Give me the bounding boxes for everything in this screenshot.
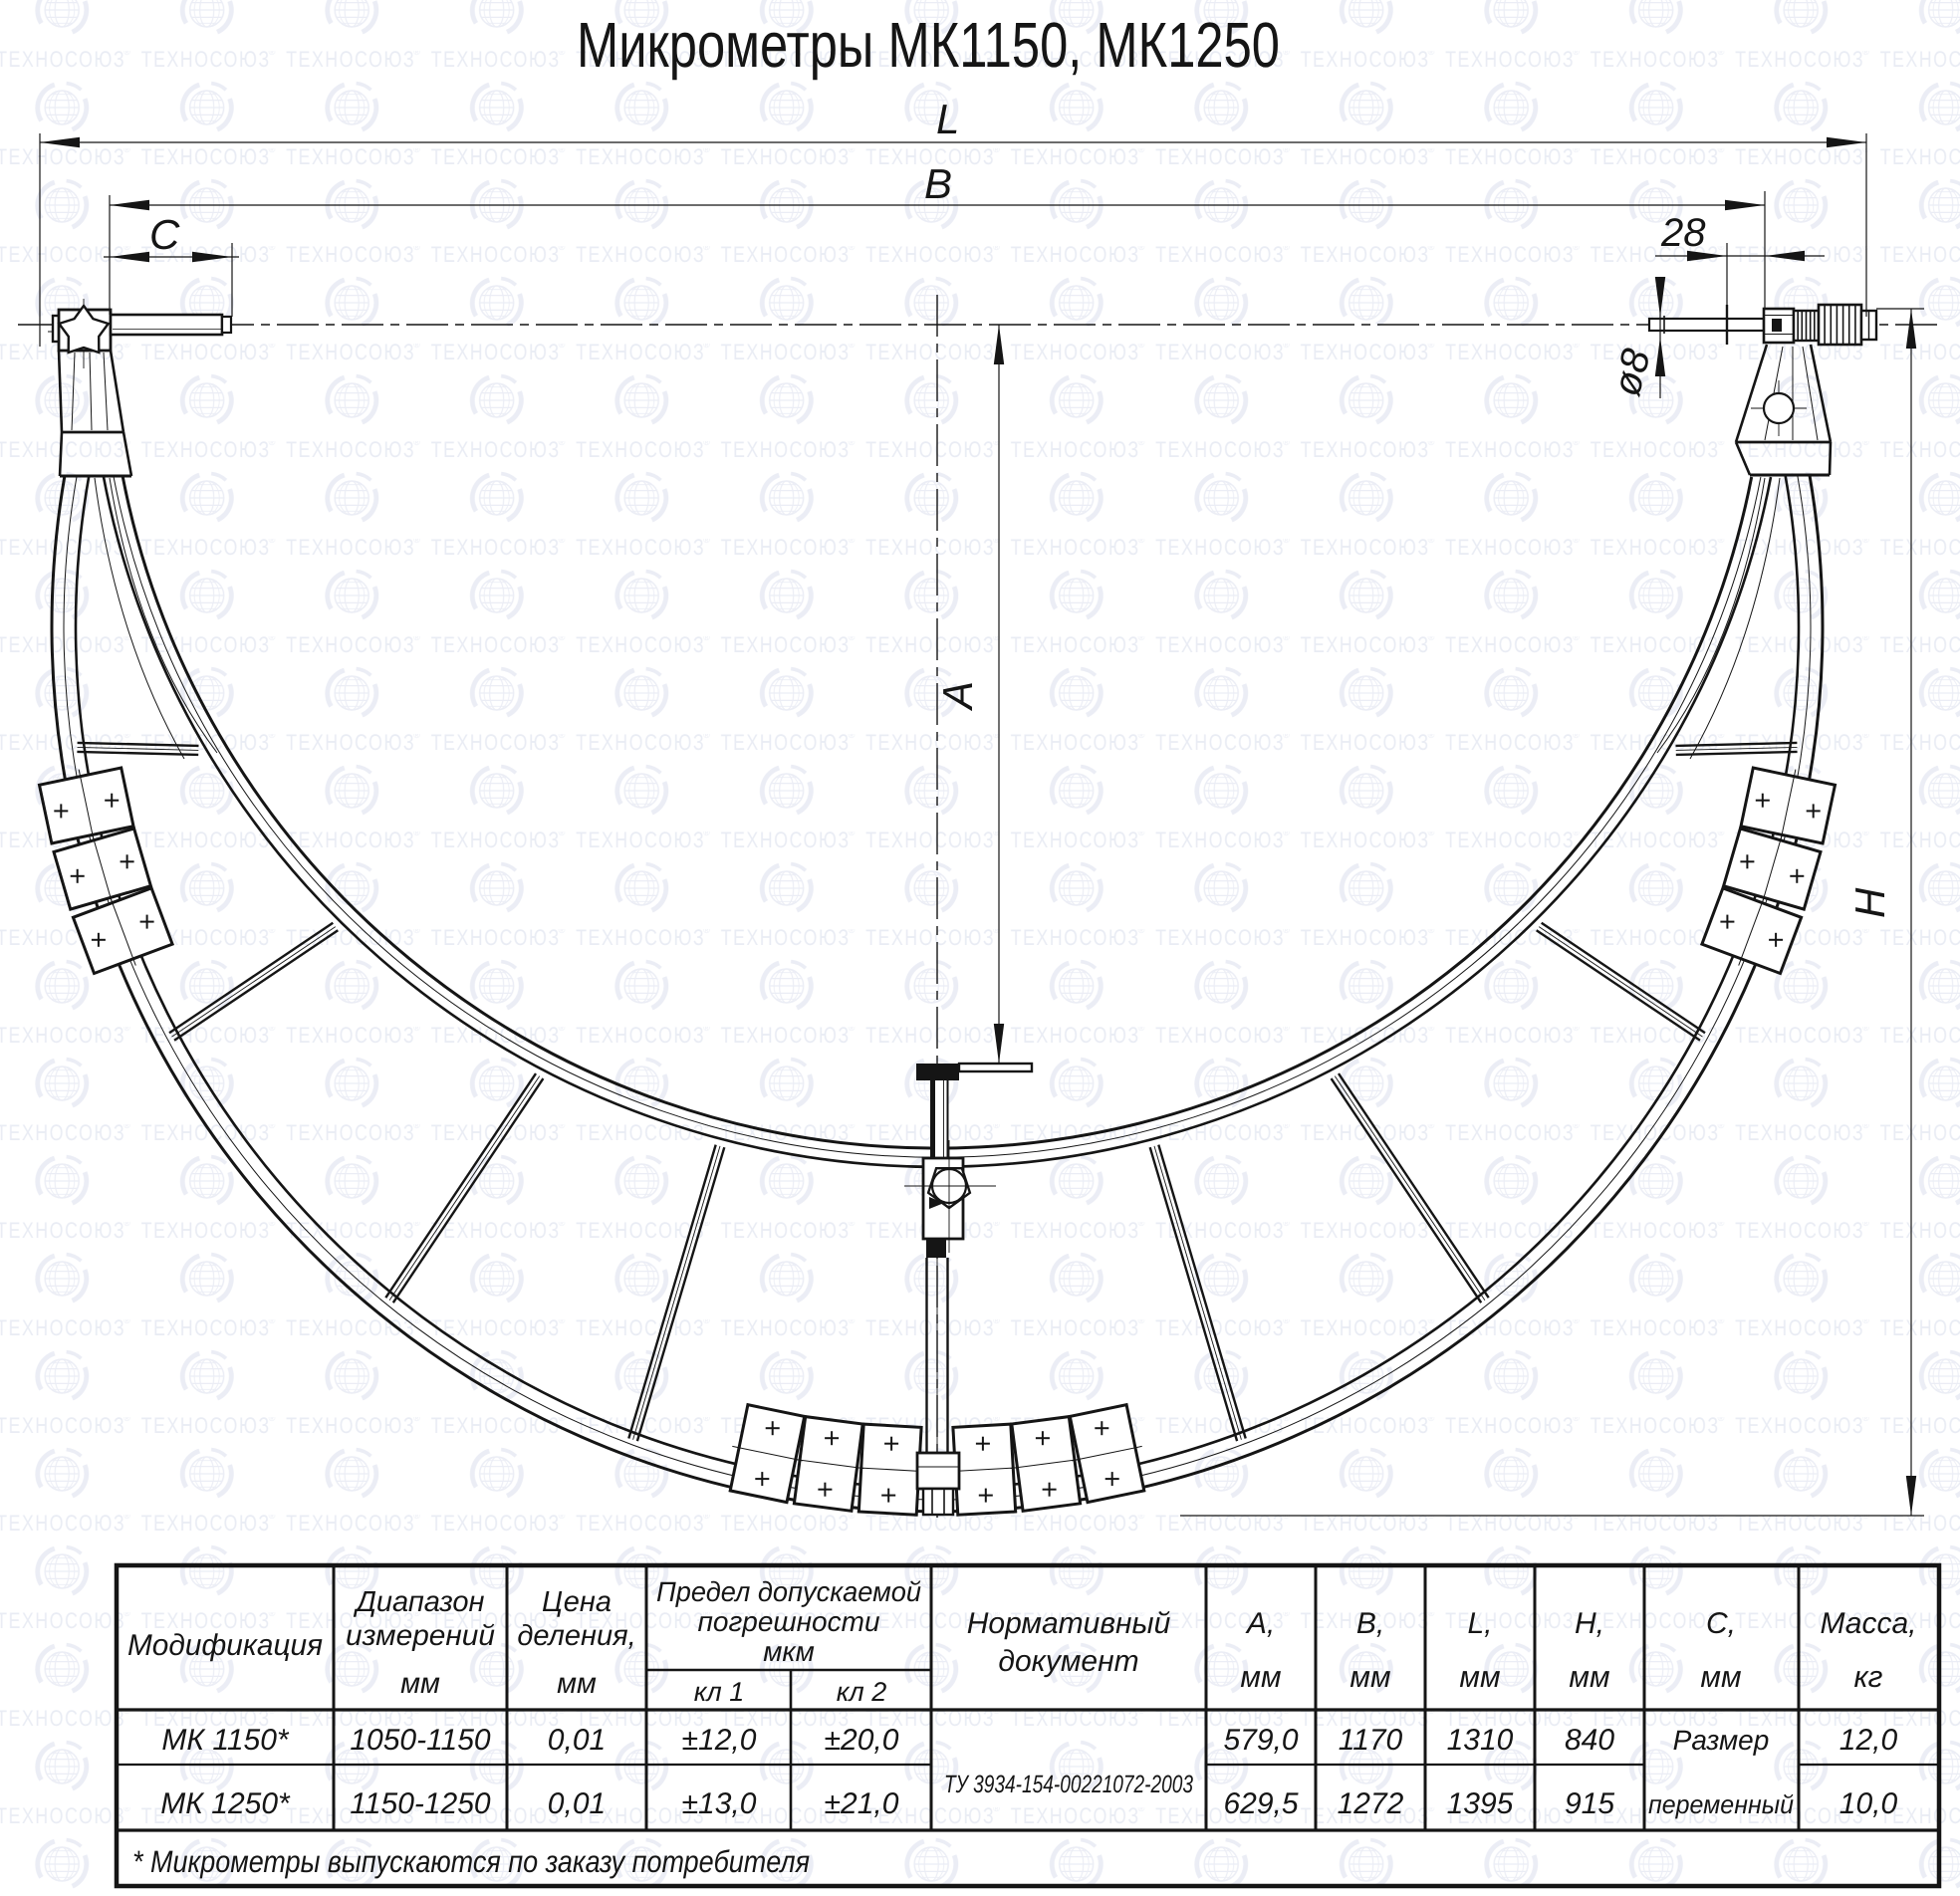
svg-text:Микрометры МК1150, МК1250: Микрометры МК1150, МК1250 <box>577 9 1280 81</box>
svg-text:С,: С, <box>1706 1607 1736 1640</box>
svg-text:840: 840 <box>1565 1724 1614 1757</box>
svg-text:деления,: деления, <box>517 1620 635 1652</box>
svg-text:погрешности: погрешности <box>697 1606 879 1637</box>
svg-text:0,01: 0,01 <box>548 1787 606 1820</box>
svg-text:В,: В, <box>1356 1607 1384 1640</box>
svg-text:кл 2: кл 2 <box>837 1677 887 1707</box>
svg-text:Н,: Н, <box>1575 1607 1604 1640</box>
svg-text:1395: 1395 <box>1447 1787 1514 1820</box>
svg-text:Модификация: Модификация <box>127 1629 323 1662</box>
svg-text:L,: L, <box>1467 1607 1492 1640</box>
svg-text:1310: 1310 <box>1447 1724 1514 1757</box>
svg-text:документ: документ <box>998 1645 1138 1678</box>
svg-text:кг: кг <box>1854 1661 1883 1694</box>
svg-text:Цена: Цена <box>542 1586 612 1618</box>
svg-text:переменный: переменный <box>1648 1789 1794 1819</box>
svg-text:Масса,: Масса, <box>1820 1607 1916 1640</box>
svg-text:H: H <box>1846 887 1893 918</box>
svg-text:Диапазон: Диапазон <box>353 1586 484 1618</box>
svg-text:кл 1: кл 1 <box>694 1677 745 1707</box>
svg-text:Размер: Размер <box>1673 1725 1770 1756</box>
svg-text:мм: мм <box>1240 1661 1281 1694</box>
svg-text:А,: А, <box>1245 1607 1275 1640</box>
svg-text:10,0: 10,0 <box>1839 1787 1898 1820</box>
svg-text:1150-1250: 1150-1250 <box>350 1787 491 1820</box>
svg-text:0,01: 0,01 <box>548 1724 606 1757</box>
svg-text:28: 28 <box>1660 211 1706 255</box>
svg-text:* Микрометры выпускаются по за: * Микрометры выпускаются по заказу потре… <box>132 1844 810 1879</box>
svg-text:мм: мм <box>1569 1661 1609 1694</box>
svg-text:C: C <box>149 211 180 258</box>
svg-text:мм: мм <box>1700 1661 1741 1694</box>
svg-text:мкм: мкм <box>763 1636 815 1667</box>
svg-text:A: A <box>934 681 981 712</box>
svg-text:L: L <box>936 96 959 142</box>
svg-text:мм: мм <box>1459 1661 1500 1694</box>
svg-text:915: 915 <box>1565 1787 1614 1820</box>
svg-text:МК 1250*: МК 1250* <box>160 1787 291 1820</box>
svg-text:1050-1150: 1050-1150 <box>350 1724 491 1757</box>
svg-text:МК 1150*: МК 1150* <box>161 1724 290 1757</box>
svg-text:мм: мм <box>1349 1661 1390 1694</box>
svg-text:B: B <box>924 160 952 207</box>
svg-text:629,5: 629,5 <box>1223 1787 1298 1820</box>
svg-text:1170: 1170 <box>1339 1724 1403 1757</box>
svg-text:измерений: измерений <box>346 1620 495 1652</box>
svg-text:мм: мм <box>400 1668 440 1700</box>
svg-text:ТУ 3934-154-00221072-2003: ТУ 3934-154-00221072-2003 <box>944 1771 1193 1798</box>
svg-text:Нормативный: Нормативный <box>967 1607 1171 1640</box>
svg-text:±13,0: ±13,0 <box>682 1787 757 1820</box>
svg-text:12,0: 12,0 <box>1839 1724 1898 1757</box>
svg-text:±20,0: ±20,0 <box>825 1724 899 1757</box>
svg-text:±12,0: ±12,0 <box>682 1724 757 1757</box>
svg-text:мм: мм <box>557 1668 597 1700</box>
svg-text:1272: 1272 <box>1338 1787 1404 1820</box>
svg-text:579,0: 579,0 <box>1223 1724 1298 1757</box>
svg-text:±21,0: ±21,0 <box>825 1787 899 1820</box>
svg-text:Предел допускаемой: Предел допускаемой <box>656 1576 921 1607</box>
